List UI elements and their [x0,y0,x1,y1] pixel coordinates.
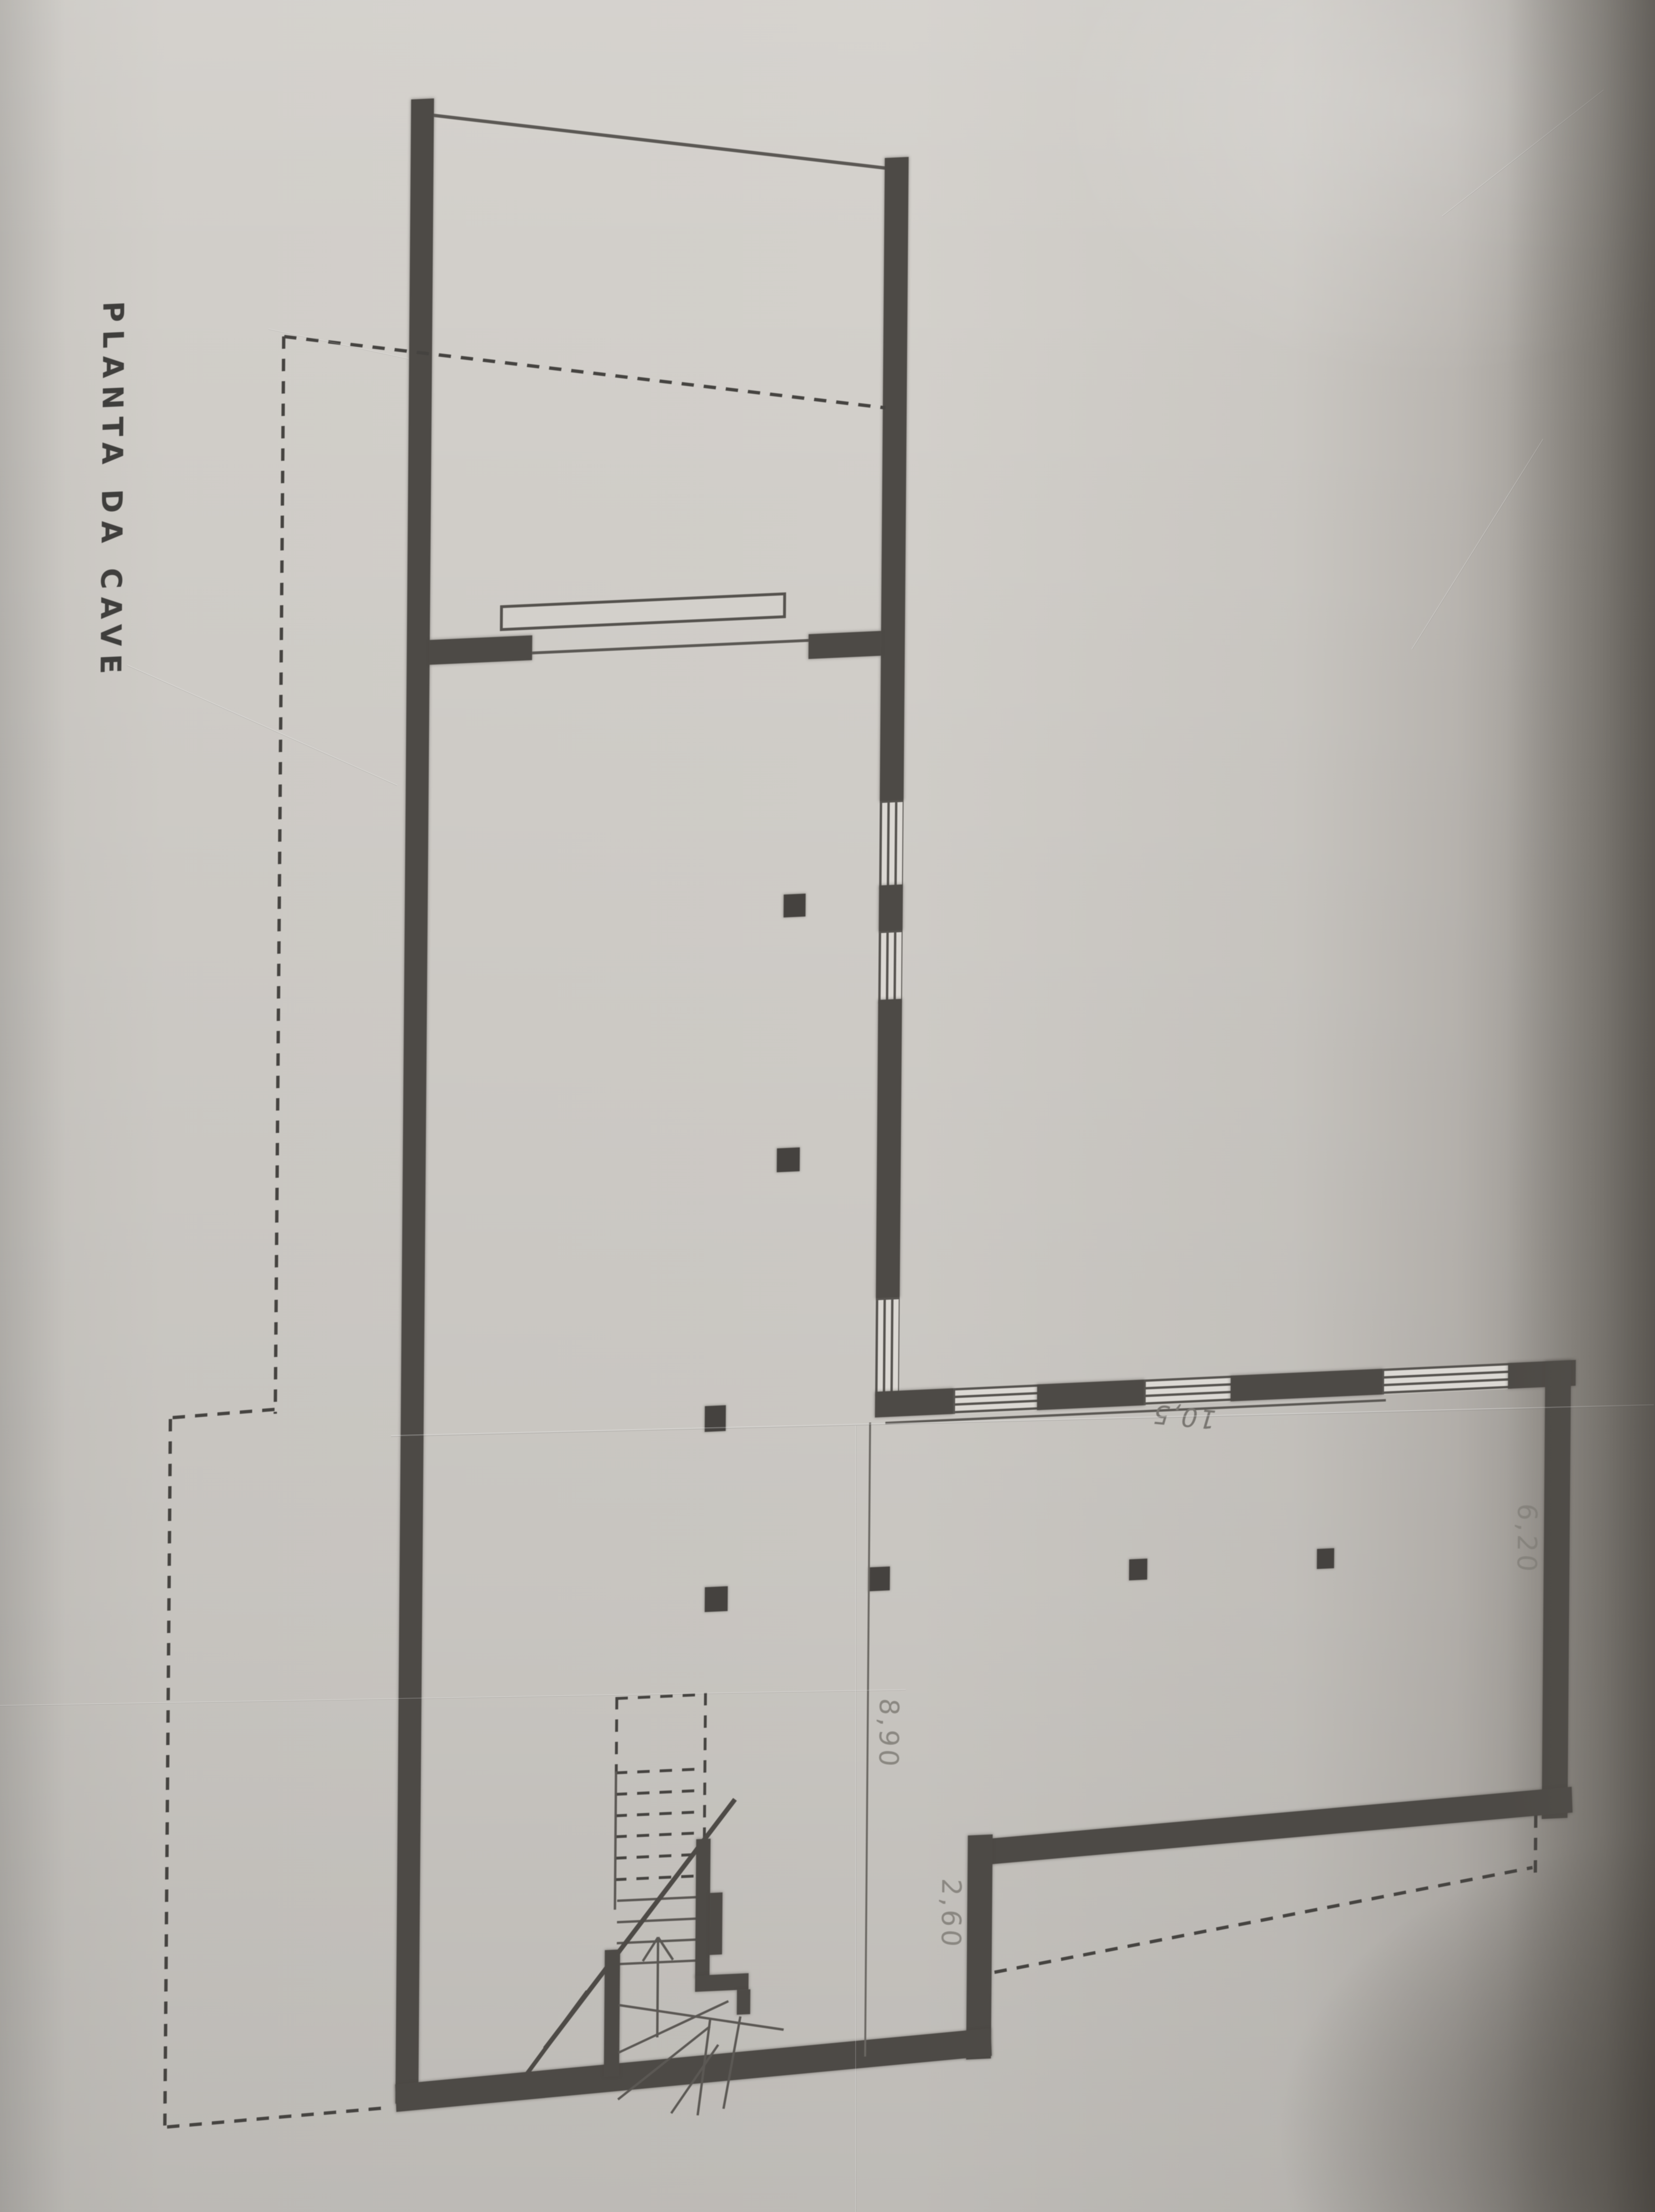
wall-divider-right [808,631,881,659]
wall-top-boundary-line [433,113,896,171]
boundary-dash-left-upper [274,336,286,1413]
window-right-3 [875,1297,900,1396]
stair-tread-2 [617,1917,703,1923]
stair-tread-dashed-3 [614,1810,705,1817]
wing-bottom-wall [988,1787,1573,1864]
stair-tread-4 [617,1959,703,1965]
stair-tread-dashed-2 [614,1789,705,1796]
column-7 [1317,1548,1334,1569]
column-3 [705,1405,725,1432]
dim-annotation-step: 2,60 [935,1877,967,1950]
wall-right-mid [876,999,902,1298]
stair-tread-dashed-6 [614,1874,705,1881]
photographed-floor-plan-sheet: PLANTA DA CAVE [0,0,1655,2212]
wall-divider-left [429,635,532,665]
stair-tread-dashed-1 [615,1767,705,1774]
column-1 [784,893,806,917]
boundary-dash-bottom-right [994,1866,1533,1974]
dim-annotation-depth: 6,20 [1511,1503,1542,1576]
boundary-dash-top [284,335,886,410]
wall-right-wing [1542,1360,1571,1819]
door-sill-line [532,639,808,654]
step-wall [966,1834,993,2059]
drawing-title: PLANTA DA CAVE [93,300,130,682]
dim-annotation-width: 10,5 [1147,1399,1220,1434]
wing-top-wall-2 [1037,1380,1144,1410]
boundary-dash-jog [173,1408,276,1419]
dim-annotation-span: 8,90 [873,1698,904,1771]
wing-top-wall-3 [1230,1369,1382,1401]
wing-window-3 [1382,1363,1512,1394]
stair-dashed-box-right [703,1693,707,1839]
wall-right-pier-1 [879,884,903,931]
stair-right-wall [695,1839,710,1977]
column-4 [705,1586,727,1612]
stair-dashed-box-left [615,1697,618,1773]
garage-door-leaf [500,593,786,631]
stair-landing-stub [737,1989,750,2015]
window-right-2 [878,930,902,1004]
column-5 [869,1567,890,1591]
stair-tread-dashed-4 [614,1831,705,1838]
boundary-dash-right-corner [1533,1815,1537,1877]
wing-window-1 [953,1384,1041,1414]
column-2 [777,1147,800,1172]
boundary-dash-bottom-left [167,2106,388,2129]
stair-dashed-box-top [615,1693,707,1700]
stair-wall-notch [710,1893,723,1955]
stair-landing-wall [695,1973,748,1992]
column-6 [1129,1558,1147,1580]
floor-plan-drawing: PLANTA DA CAVE [0,0,1655,2212]
window-right-1 [879,800,903,889]
wall-left-outer [396,98,434,2103]
wall-right-upper [880,157,909,801]
winder-line-1 [618,2004,784,2031]
stair-left-edge-line [614,1772,617,1910]
stair-direction-arrow [656,1937,659,2038]
dimension-reference-line [864,1423,871,2057]
wing-top-wall-1 [875,1388,953,1417]
boundary-dash-left-lower [163,1419,172,2125]
